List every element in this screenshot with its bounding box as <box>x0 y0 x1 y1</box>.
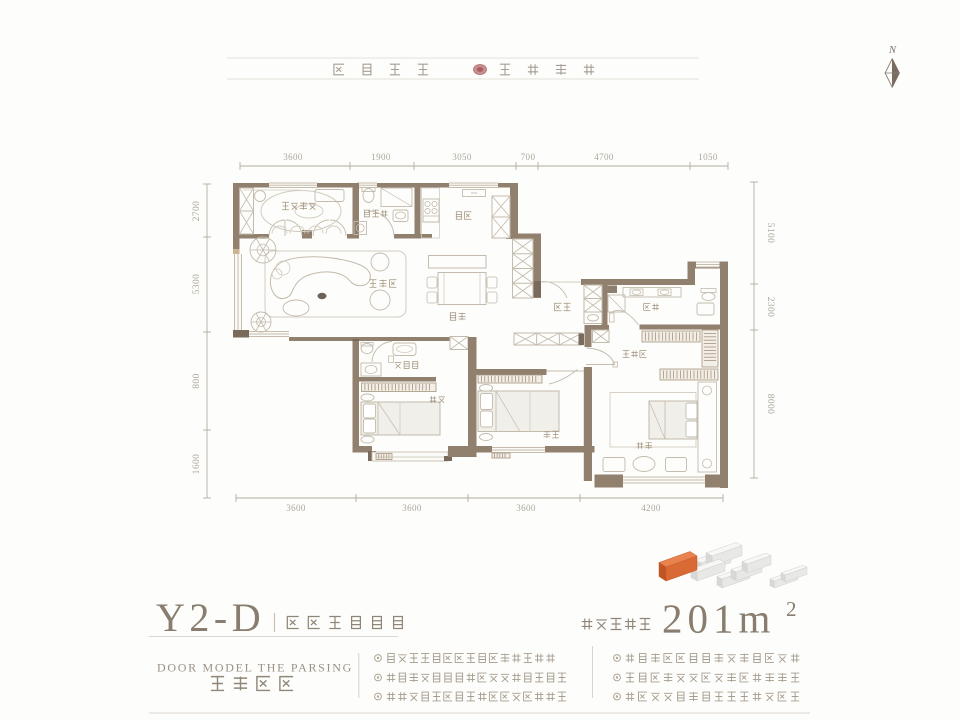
svg-text:3600: 3600 <box>402 503 422 513</box>
svg-text:201m: 201m <box>662 596 775 642</box>
svg-text:700: 700 <box>521 152 536 162</box>
svg-text:5300: 5300 <box>192 274 202 295</box>
svg-text:N: N <box>888 45 897 56</box>
svg-text:Y2-D: Y2-D <box>156 595 265 640</box>
svg-text:2: 2 <box>786 597 797 621</box>
svg-text:1900: 1900 <box>371 152 391 162</box>
svg-text:2700: 2700 <box>192 201 202 222</box>
svg-text:8000: 8000 <box>765 394 775 415</box>
svg-text:2300: 2300 <box>765 297 775 318</box>
svg-text:3600: 3600 <box>283 152 303 162</box>
svg-text:DOOR MODEL THE PARSING: DOOR MODEL THE PARSING <box>157 661 353 675</box>
svg-text:3600: 3600 <box>516 503 536 513</box>
svg-text:800: 800 <box>192 373 202 388</box>
svg-text:4200: 4200 <box>641 503 661 513</box>
svg-text:1600: 1600 <box>192 454 202 475</box>
svg-text:3050: 3050 <box>452 152 472 162</box>
svg-text:5100: 5100 <box>765 223 775 244</box>
svg-text:4700: 4700 <box>594 152 614 162</box>
svg-text:3600: 3600 <box>286 503 306 513</box>
svg-text:1050: 1050 <box>698 152 718 162</box>
